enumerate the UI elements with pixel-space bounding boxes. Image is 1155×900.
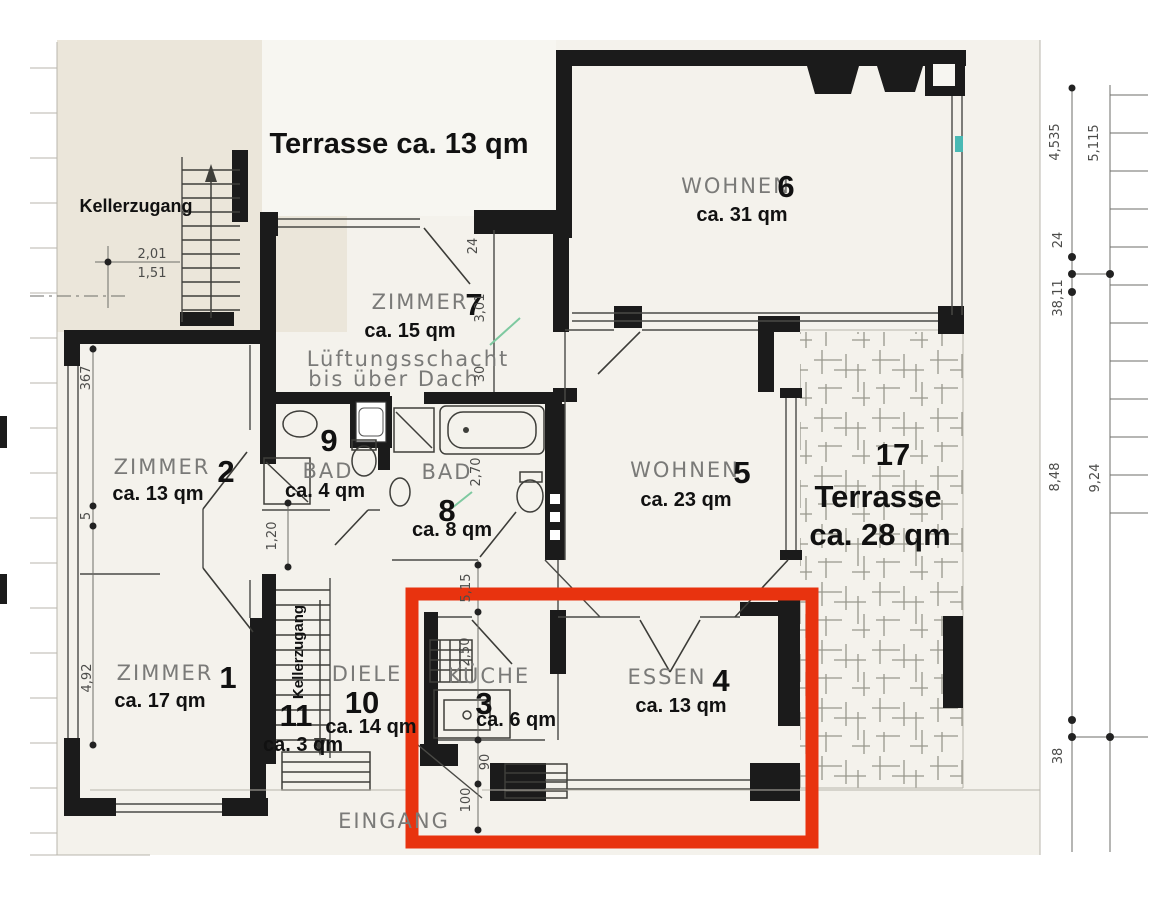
dim-924: 9,24 xyxy=(1088,464,1103,493)
dim-201: 2,01 xyxy=(138,247,167,262)
dim-dot-r8 xyxy=(1106,733,1114,741)
room-name-zimmer7: ZIMMER xyxy=(372,290,469,314)
room-name-wohnen5: WOHNEN xyxy=(630,458,740,482)
room-area-wohnen6: ca. 31 qm xyxy=(696,204,787,226)
room-area-bad8: ca. 8 qm xyxy=(412,519,492,541)
room-number-diele: 10 xyxy=(345,685,379,720)
room-area-zimmer7: ca. 15 qm xyxy=(364,320,455,342)
dim-301: 3,01 xyxy=(473,294,488,323)
dim-dot-11 xyxy=(475,781,482,788)
dim-270: 2,70 xyxy=(469,458,484,487)
dim-dot-r3 xyxy=(1068,270,1076,278)
dim-5: 5 xyxy=(79,512,94,520)
room-name-terrasse17: Terrasse xyxy=(815,479,942,514)
dim-dot-r5 xyxy=(1068,716,1076,724)
dim-30: 30 xyxy=(473,366,488,383)
dim-120: 1,20 xyxy=(265,522,280,551)
dim-dot-4 xyxy=(90,523,97,530)
room-number-zimmer1: 1 xyxy=(219,660,236,695)
dim-367: 367 xyxy=(79,366,94,391)
dim-24: 24 xyxy=(466,238,481,255)
dim-90: 90 xyxy=(478,754,493,771)
room-name-zimmer1: ZIMMER xyxy=(117,661,214,685)
room-area-wohnen5: ca. 23 qm xyxy=(640,489,731,511)
dim-3811: 38,11 xyxy=(1051,279,1066,316)
room-area-11: ca. 3 qm xyxy=(263,734,343,756)
room-name-wohnen6: WOHNEN xyxy=(681,174,791,198)
room-area-zimmer1: ca. 17 qm xyxy=(114,690,205,712)
dim-848: 8,48 xyxy=(1048,463,1063,492)
room-name-bad8: BAD xyxy=(422,460,473,484)
dim-dot-10 xyxy=(475,737,482,744)
dim-38: 38 xyxy=(1051,748,1066,765)
label-eingang: EINGANG xyxy=(338,809,450,833)
shaft-opening-1 xyxy=(550,494,560,504)
floor-plan-page: Terrasse ca. 13 qm Kellerzugang Kellerzu… xyxy=(0,0,1155,900)
dim-250: 2,50 xyxy=(458,638,473,667)
dim-100: 100 xyxy=(459,788,474,813)
scan-artifacts xyxy=(0,416,7,604)
shaft-opening-2 xyxy=(550,512,560,522)
dim-dot-9 xyxy=(475,609,482,616)
title-terrasse-13: Terrasse ca. 13 qm xyxy=(269,128,528,160)
room-area-terrasse17: ca. 28 qm xyxy=(809,517,950,552)
dim-dot-r4 xyxy=(1068,288,1076,296)
floor-plan-drawing: Terrasse ca. 13 qm Kellerzugang Kellerzu… xyxy=(0,0,1155,900)
dim-151: 1,51 xyxy=(138,266,167,281)
bathtub-drain xyxy=(463,427,469,433)
shaft-opening-3 xyxy=(550,530,560,540)
dim-dot-3 xyxy=(90,503,97,510)
dim-dot-5 xyxy=(90,742,97,749)
room-area-zimmer2: ca. 13 qm xyxy=(112,483,203,505)
dim-24r: 24 xyxy=(1051,232,1066,249)
room-number-essen: 4 xyxy=(712,663,730,698)
edge-artifact-2 xyxy=(0,574,7,604)
dim-492: 4,92 xyxy=(80,664,95,693)
ruler-left xyxy=(30,42,57,855)
dim-5115: 5,115 xyxy=(1087,124,1102,161)
label-lueftung-2: bis über Dach xyxy=(308,367,480,391)
room-number-11: 11 xyxy=(280,698,313,733)
chimney-cutout xyxy=(933,64,955,86)
edge-artifact-1 xyxy=(0,416,7,448)
dim-dot-r2 xyxy=(1068,253,1076,261)
terrace-17 xyxy=(800,330,963,788)
dim-dot-7 xyxy=(285,564,292,571)
terrace-hatch xyxy=(800,332,963,788)
room-name-essen: ESSEN xyxy=(628,665,707,689)
label-kellerzugang-top: Kellerzugang xyxy=(79,196,192,216)
dim-dot-8 xyxy=(475,562,482,569)
teal-mark xyxy=(955,136,963,152)
dim-4535: 4,535 xyxy=(1048,123,1063,160)
dim-dot-2 xyxy=(90,346,97,353)
room-area-bad9: ca. 4 qm xyxy=(285,480,365,502)
room-number-wohnen6: 6 xyxy=(777,169,794,204)
dim-dot-r1 xyxy=(1069,85,1076,92)
dim-dot-r7 xyxy=(1106,270,1114,278)
room-number-bad9: 9 xyxy=(320,423,337,458)
room-area-essen: ca. 13 qm xyxy=(635,695,726,717)
dim-515: 5,15 xyxy=(459,574,474,603)
dim-dot-r6 xyxy=(1068,733,1076,741)
room-number-terrasse17: 17 xyxy=(876,437,910,472)
room-area-kueche: ca. 6 qm xyxy=(476,709,556,731)
dim-dot-1 xyxy=(105,259,112,266)
ruler-left-ticks xyxy=(30,68,57,833)
room-name-diele: DIELE xyxy=(332,662,403,686)
dim-ticks-right xyxy=(1110,95,1148,513)
room-number-wohnen5: 5 xyxy=(733,455,750,490)
room-number-zimmer2: 2 xyxy=(217,454,234,489)
label-kellerzugang-stair: Kellerzugang xyxy=(290,605,307,699)
room-name-zimmer2: ZIMMER xyxy=(114,455,211,479)
dim-dot-12 xyxy=(475,827,482,834)
